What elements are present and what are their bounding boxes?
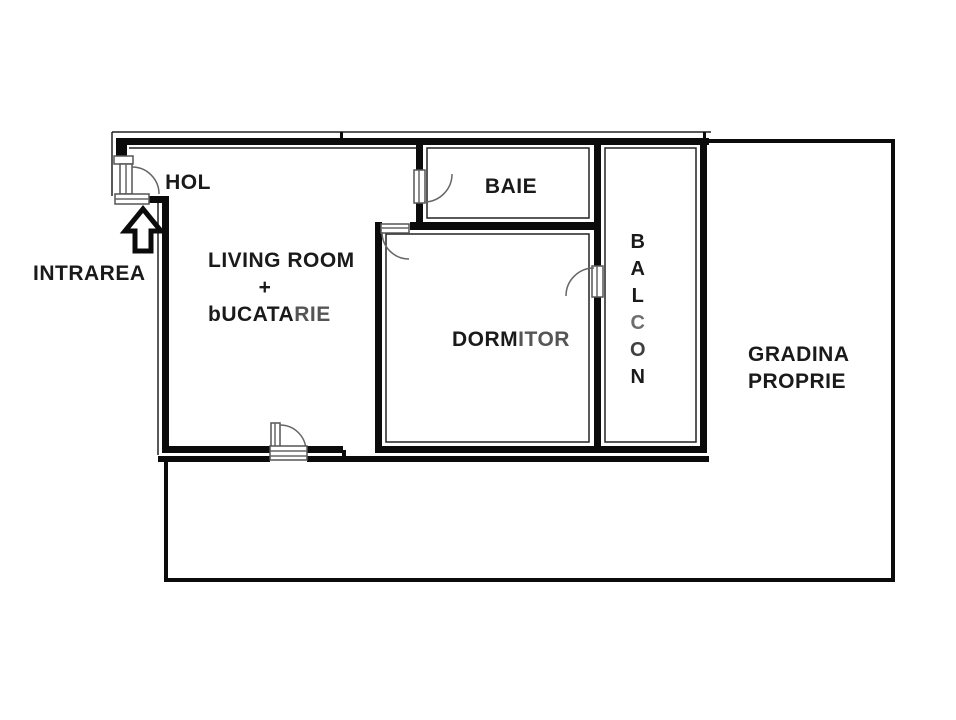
label-balcony: B A L C O N [630,231,646,388]
balcony-door-swing [566,268,594,296]
bathroom-door-swing [424,174,452,202]
label-living-line1: LIVING ROOM [208,249,355,272]
balcony-inset [605,148,696,442]
wall-bottom-upper-c [375,446,707,453]
label-kitchen-light: RIE [294,303,331,326]
label-balcony-letter-l: L [632,285,645,307]
wall-bedroom-left [375,222,382,453]
label-bedroom: DORMITOR [452,328,570,351]
label-balcony-letter-b: B [631,231,646,253]
entrance-door-top-jamb [114,156,133,164]
label-living-kitchen: LIVING ROOM + bUCATARIE [208,249,355,326]
wall-tick-top-2 [703,132,706,138]
balcony-door [566,266,603,297]
wall-east-upper [594,138,601,266]
label-living-plus: + [259,276,272,299]
entrance-door-swing [132,167,159,194]
room-inset-lines [386,148,696,442]
bathroom-door [414,170,452,203]
label-hall: HOL [165,171,211,194]
label-living-line3: bUCATARIE [208,303,331,326]
entrance-arrow-icon [125,209,161,251]
label-kitchen-dark: bUCATA [208,303,294,326]
wall-bathroom-left-upper [416,138,423,170]
floor-plan-page: HOL INTRAREA LIVING ROOM + bUCATARIE BAI… [0,0,956,720]
wall-left-above-door [116,138,127,158]
label-balcony-letter-a: A [631,258,646,280]
label-bedroom-dark: DORM [452,328,518,351]
label-entrance: INTRAREA [33,262,146,285]
garden-door [270,423,307,460]
label-bathroom: BAIE [485,175,537,198]
wall-left-main [162,199,169,453]
label-garden-line2: PROPRIE [748,370,846,393]
floor-plan: HOL INTRAREA LIVING ROOM + bUCATARIE BAI… [0,0,956,720]
label-bedroom-light: ITOR [518,328,570,351]
label-balcony-letter-c: C [631,312,646,334]
label-balcony-letter-o: O [630,339,646,361]
wall-bottom-upper-a [162,446,270,453]
wall-balcony-right [700,138,707,453]
wall-bottom-lower-a [158,456,270,462]
room-labels: HOL INTRAREA LIVING ROOM + bUCATARIE BAI… [33,171,850,393]
label-garden: GRADINA PROPRIE [748,343,850,393]
wall-bottom-lower-b [307,456,709,462]
wall-bottom-upper-b [307,446,343,453]
wall-east-lower [594,297,601,453]
wall-top [122,138,709,145]
bedroom-door [381,224,409,259]
wall-tick-top-1 [340,132,343,138]
wall-bedroom-top-b [410,222,601,230]
label-balcony-letter-n: N [631,366,646,388]
label-garden-line1: GRADINA [748,343,850,366]
garden-door-threshold [270,446,307,460]
